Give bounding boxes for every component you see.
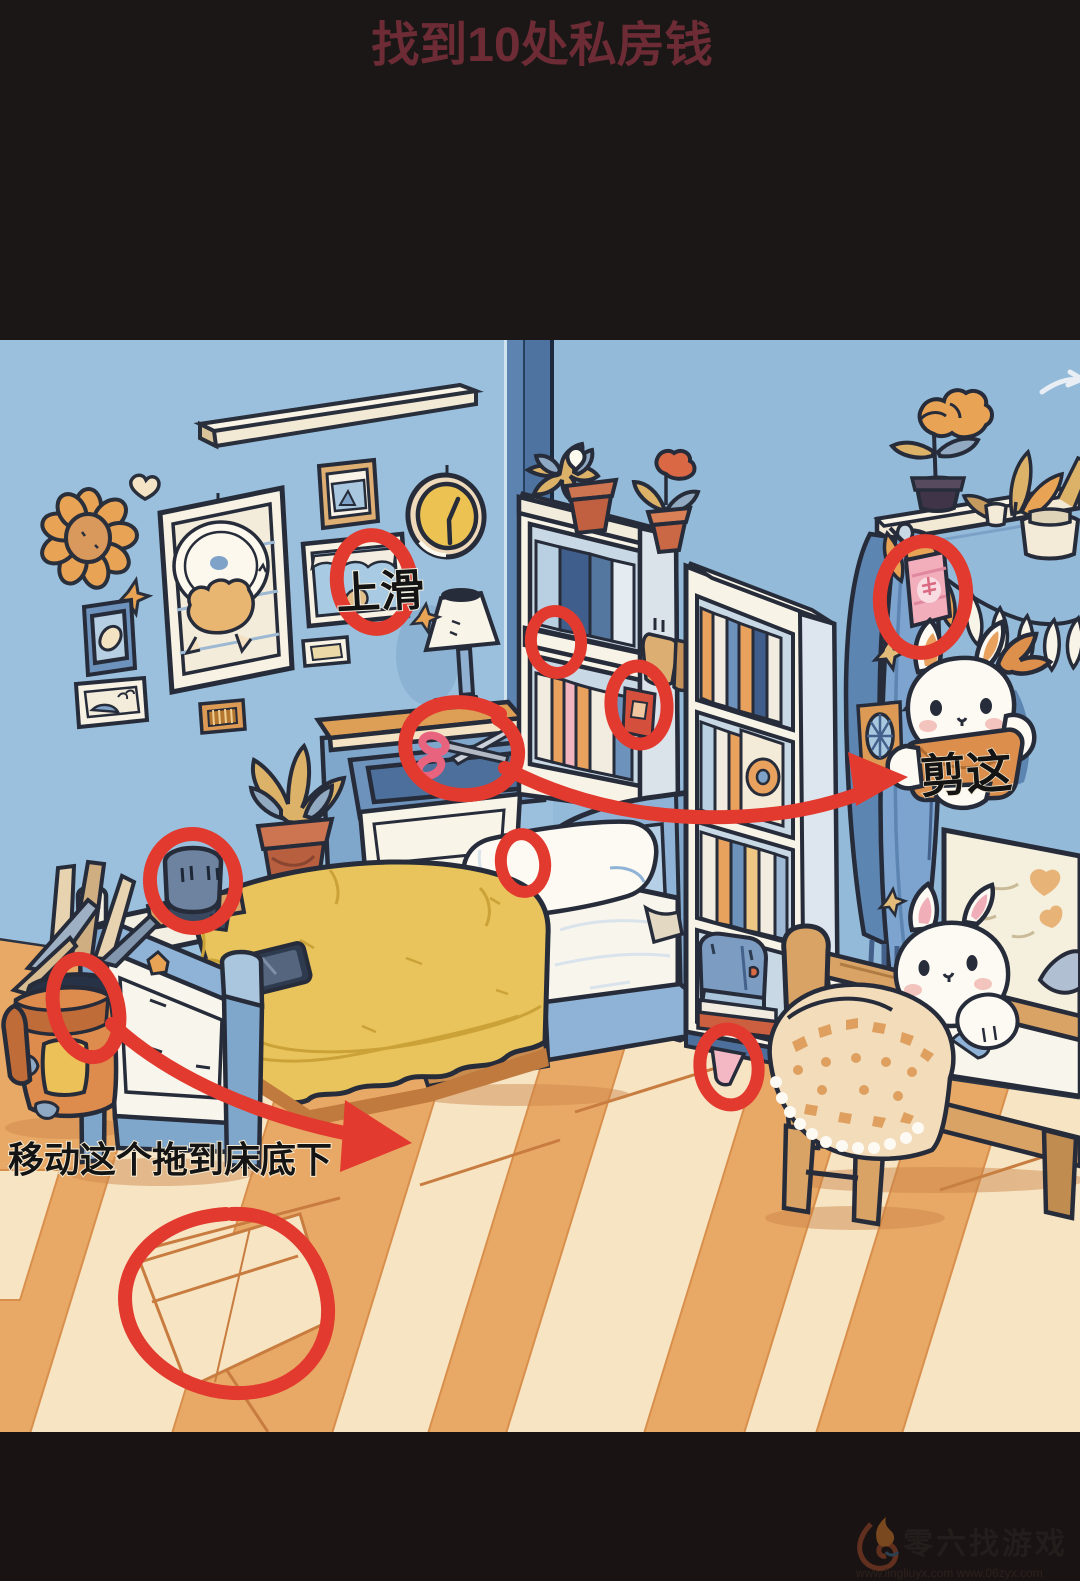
svg-text:www.lingliuyx.com www.06zyx.c: www.lingliuyx.com www.06zyx.com <box>855 1566 1043 1580</box>
svg-text:剪这: 剪这 <box>918 745 1013 803</box>
svg-text:移动这个拖到床底下: 移动这个拖到床底下 <box>8 1139 332 1180</box>
svg-text:找到10处私房钱: 找到10处私房钱 <box>371 19 712 72</box>
svg-text:零六找游戏: 零六找游戏 <box>903 1528 1068 1561</box>
svg-text:上滑: 上滑 <box>335 566 425 620</box>
